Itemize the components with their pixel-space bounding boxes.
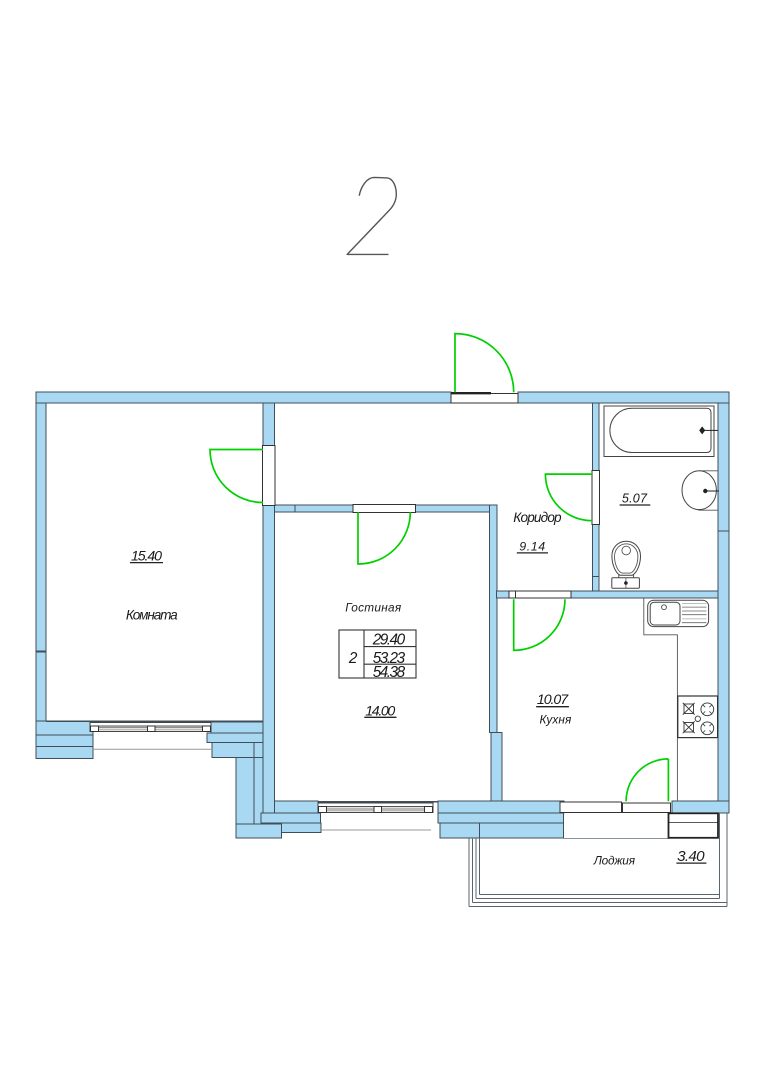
svg-text:54.38: 54.38 [373, 664, 406, 681]
svg-text:2: 2 [348, 650, 358, 667]
svg-text:Лоджия: Лоджия [593, 854, 636, 868]
svg-text:5.07: 5.07 [622, 492, 648, 506]
svg-text:Комната: Комната [126, 608, 178, 623]
svg-text:Коридор: Коридор [513, 510, 562, 525]
svg-text:Кухня: Кухня [540, 712, 572, 726]
svg-text:Гостиная: Гостиная [345, 600, 402, 614]
svg-text:29.40: 29.40 [372, 631, 406, 648]
svg-text:9.14: 9.14 [519, 539, 545, 553]
svg-text:10.07: 10.07 [537, 692, 569, 708]
